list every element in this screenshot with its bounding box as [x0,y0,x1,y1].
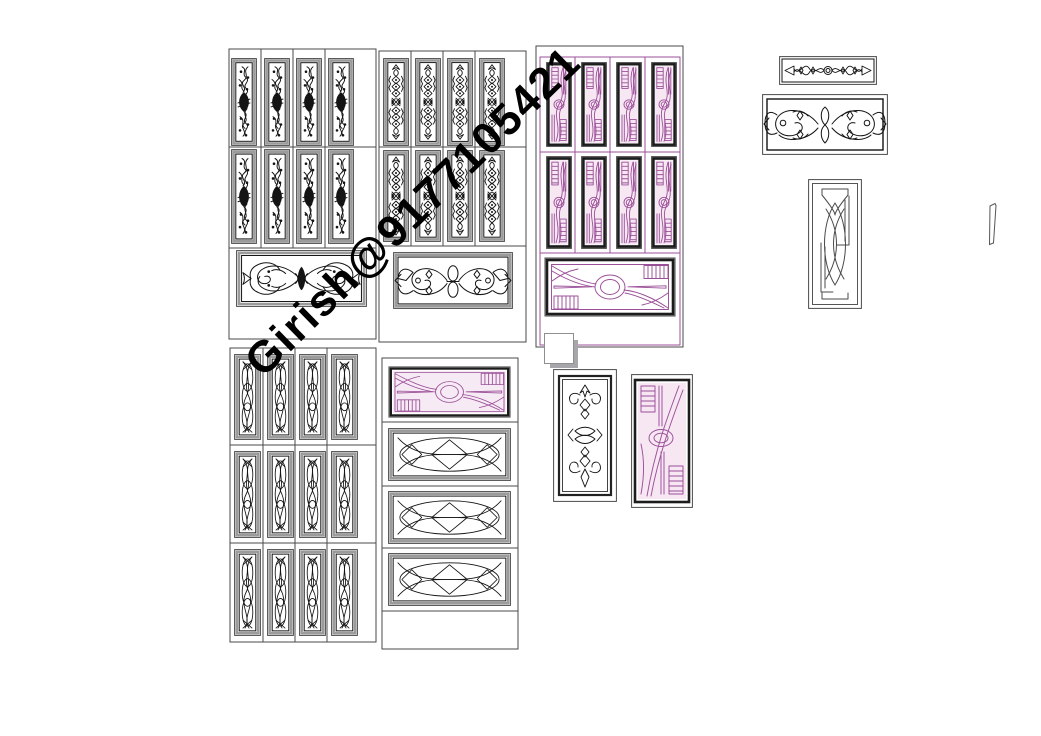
door-design-carved-scroll [229,49,376,339]
carved-panel [416,151,441,242]
lattice-horizontal-panel [389,429,511,481]
lattice-panel [268,355,294,440]
carved-strip-large [763,95,888,155]
modern-panel [547,63,572,147]
lattice-panel [332,355,358,440]
carved-panel [448,151,473,242]
modern-panel [582,157,607,249]
carved-panel [448,59,473,146]
modern-panel [652,63,677,147]
carved-panel [480,151,505,242]
carved-panel [329,150,354,244]
carved-horizontal-panel [237,251,367,307]
lattice-horizontal-panel [389,492,511,544]
carved-panel [416,59,441,146]
modern-panel [582,63,607,147]
carved-panel [232,150,257,244]
lattice-panel [332,452,358,538]
lattice-panel [268,452,294,538]
modern-panel [617,63,642,147]
carved-panel [297,150,322,244]
lattice-panel [268,550,294,636]
selection-box [545,334,574,364]
modern-panel [617,157,642,249]
modern-horizontal-panel [545,258,675,316]
door-design-drawing [0,0,1041,736]
carved-horizontal-panel [394,253,513,309]
lattice-panel [300,355,326,440]
carved-panel [384,151,409,242]
stray-sliver-shape [990,204,997,245]
arcs-panel [809,180,862,309]
door-design-carved-floral [379,51,526,342]
carved-strip-small [780,57,877,85]
lattice-horizontal-panel [389,554,511,606]
door-design-lattice [230,348,376,642]
carved-panel [329,59,354,146]
modern-panel [547,157,572,249]
lattice-panel [332,550,358,636]
door-design-modern-magenta [536,46,683,368]
lattice-panel [300,550,326,636]
ornate-vertical-panel [554,370,617,502]
modern-vertical-panel [632,375,693,508]
carved-panel [232,59,257,146]
carved-panel [265,59,290,146]
carved-panel [297,59,322,146]
lattice-panel [235,550,261,636]
lattice-panel [235,452,261,538]
modern-horizontal-panel [389,367,510,417]
carved-panel [480,59,505,146]
carved-panel [265,150,290,244]
design-sheet-canvas: Girish@9177105421 [0,0,1041,736]
door-design-horizontal-panels [382,358,518,649]
lattice-panel [235,355,261,440]
carved-panel [384,59,409,146]
modern-panel [652,157,677,249]
lattice-panel [300,452,326,538]
